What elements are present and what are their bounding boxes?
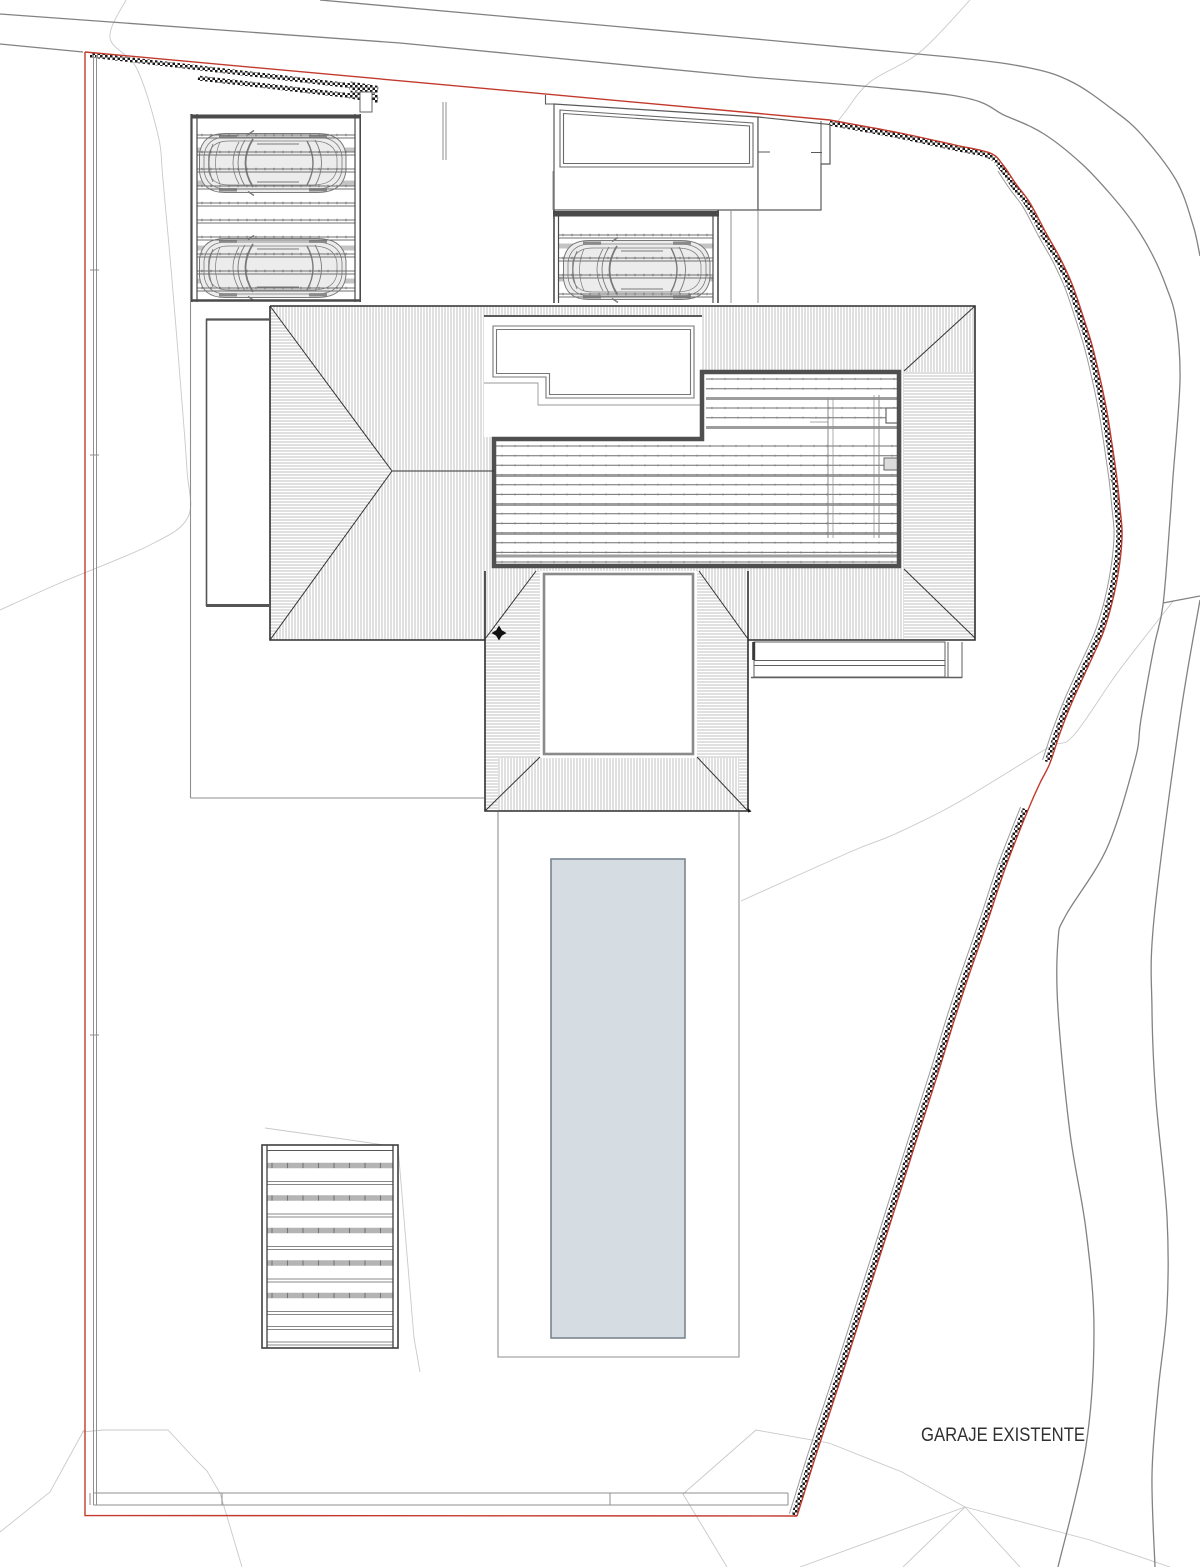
svg-text:GARAJE EXISTENTE: GARAJE EXISTENTE xyxy=(921,1425,1085,1446)
